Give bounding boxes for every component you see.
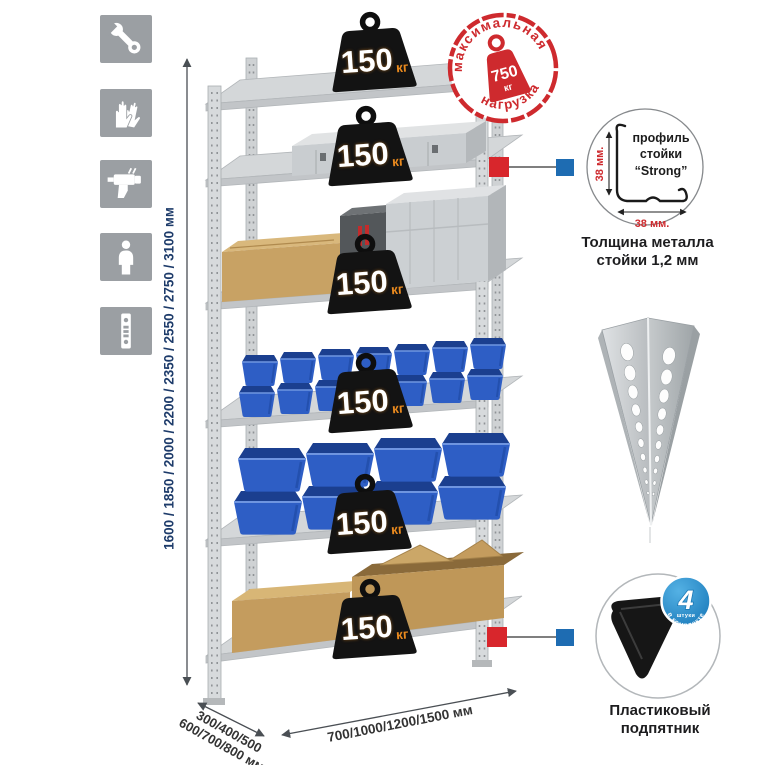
shelf-load-badge-3: 150 кг bbox=[314, 229, 419, 316]
blue-marker-bottom bbox=[556, 629, 574, 646]
plastic-foot-circle: 4 штуки в комплекте bbox=[596, 574, 720, 698]
shelf-load-badge-4: 150 кг bbox=[315, 348, 420, 435]
svg-text:кг: кг bbox=[392, 400, 406, 416]
profile-word-2: стойки bbox=[640, 147, 682, 161]
corner-post-image bbox=[598, 318, 700, 543]
svg-text:150: 150 bbox=[335, 504, 389, 543]
red-marker-bottom bbox=[487, 627, 507, 647]
svg-text:кг: кг bbox=[396, 626, 410, 642]
shelf-load-badge-1: 150 кг bbox=[319, 7, 424, 94]
svg-text:150: 150 bbox=[336, 383, 390, 422]
svg-text:150: 150 bbox=[336, 136, 390, 175]
shelf-load-badge-2: 150 кг bbox=[315, 101, 420, 188]
red-marker-top bbox=[489, 157, 509, 177]
count-badge-number: 4 bbox=[677, 585, 693, 615]
shelf-load-badge-6: 150 кг bbox=[319, 574, 424, 661]
count-badge-small: штуки bbox=[677, 613, 696, 619]
profile-detail-circle: 38 мм. 38 мм. профиль стойки “Strong” bbox=[587, 109, 703, 230]
profile-word-3: “Strong” bbox=[635, 164, 688, 178]
svg-text:кг: кг bbox=[391, 521, 405, 537]
svg-text:кг: кг bbox=[396, 59, 410, 75]
shelving-infographic: 38 мм. 38 мм. профиль стойки “Strong” 4 … bbox=[0, 0, 765, 765]
svg-text:кг: кг bbox=[392, 153, 406, 169]
profile-dim-vertical: 38 мм. bbox=[594, 147, 606, 182]
svg-text:кг: кг bbox=[391, 281, 405, 297]
metal-thickness-caption: Толщина металла стойки 1,2 мм bbox=[575, 234, 720, 269]
profile-dim-horizontal: 38 мм. bbox=[635, 218, 670, 230]
shelf-load-badge-5: 150 кг bbox=[314, 469, 419, 556]
height-dimension-label: 1600 / 1850 / 2000 / 2200 / 2350 / 2550 … bbox=[162, 99, 177, 659]
svg-text:150: 150 bbox=[340, 42, 394, 81]
profile-word-1: профиль bbox=[632, 131, 689, 145]
blue-marker-top bbox=[556, 159, 574, 176]
svg-text:150: 150 bbox=[335, 264, 389, 303]
svg-text:150: 150 bbox=[340, 609, 394, 648]
plastic-foot-caption: Пластиковый подпятник bbox=[590, 702, 730, 737]
